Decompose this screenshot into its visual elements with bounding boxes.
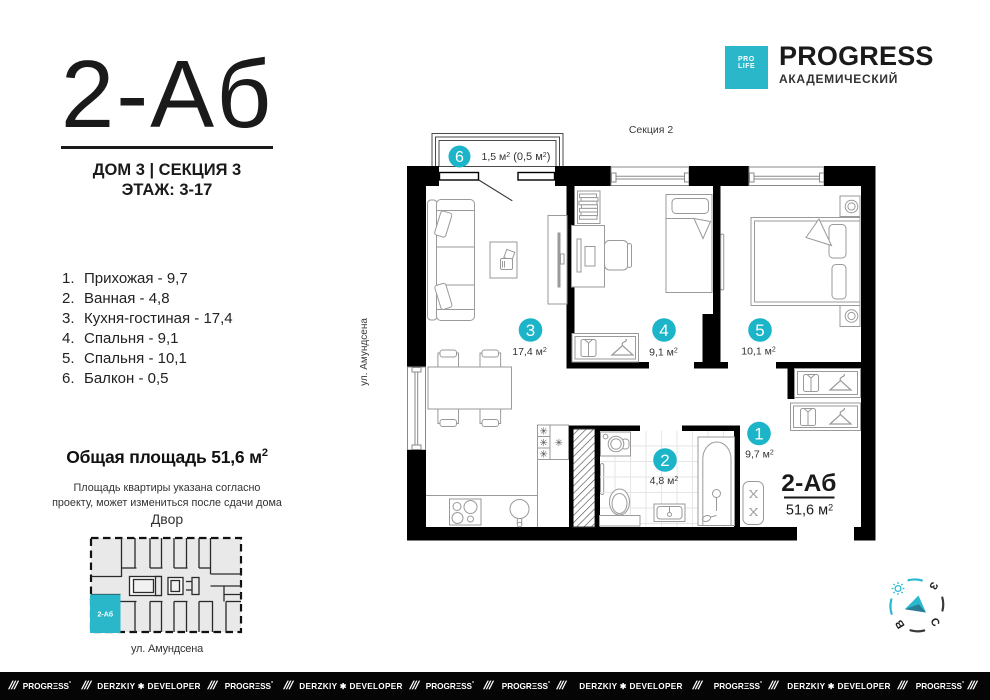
svg-text:✳: ✳ <box>540 450 548 461</box>
svg-text:4,8 м2: 4,8 м2 <box>650 475 679 487</box>
svg-text:2: 2 <box>660 451 669 470</box>
svg-text:2-Аб: 2-Аб <box>98 611 114 619</box>
svg-text:51,6 м2: 51,6 м2 <box>786 503 833 519</box>
svg-text:5: 5 <box>755 321 764 340</box>
svg-text:✳: ✳ <box>555 438 563 449</box>
svg-text:3: 3 <box>526 321 535 340</box>
svg-text:4: 4 <box>659 321 668 340</box>
svg-text:✳: ✳ <box>540 427 548 438</box>
svg-text:1,5 м2 (0,5 м2): 1,5 м2 (0,5 м2) <box>482 151 551 163</box>
svg-text:6: 6 <box>455 149 464 166</box>
svg-text:Секция 2: Секция 2 <box>629 124 673 136</box>
svg-text:9,1 м2: 9,1 м2 <box>649 347 678 359</box>
svg-text:1: 1 <box>754 425 763 444</box>
svg-text:9,7 м2: 9,7 м2 <box>745 449 774 461</box>
svg-text:✳: ✳ <box>540 438 548 449</box>
svg-text:17,4 м2: 17,4 м2 <box>512 346 547 358</box>
svg-text:В: В <box>893 617 907 630</box>
svg-text:ул. Амундсена: ул. Амундсена <box>359 318 370 386</box>
svg-text:10,1 м2: 10,1 м2 <box>741 346 776 358</box>
svg-text:З: З <box>926 580 940 592</box>
svg-text:С: С <box>927 616 941 629</box>
svg-text:2-Аб: 2-Аб <box>781 470 837 497</box>
